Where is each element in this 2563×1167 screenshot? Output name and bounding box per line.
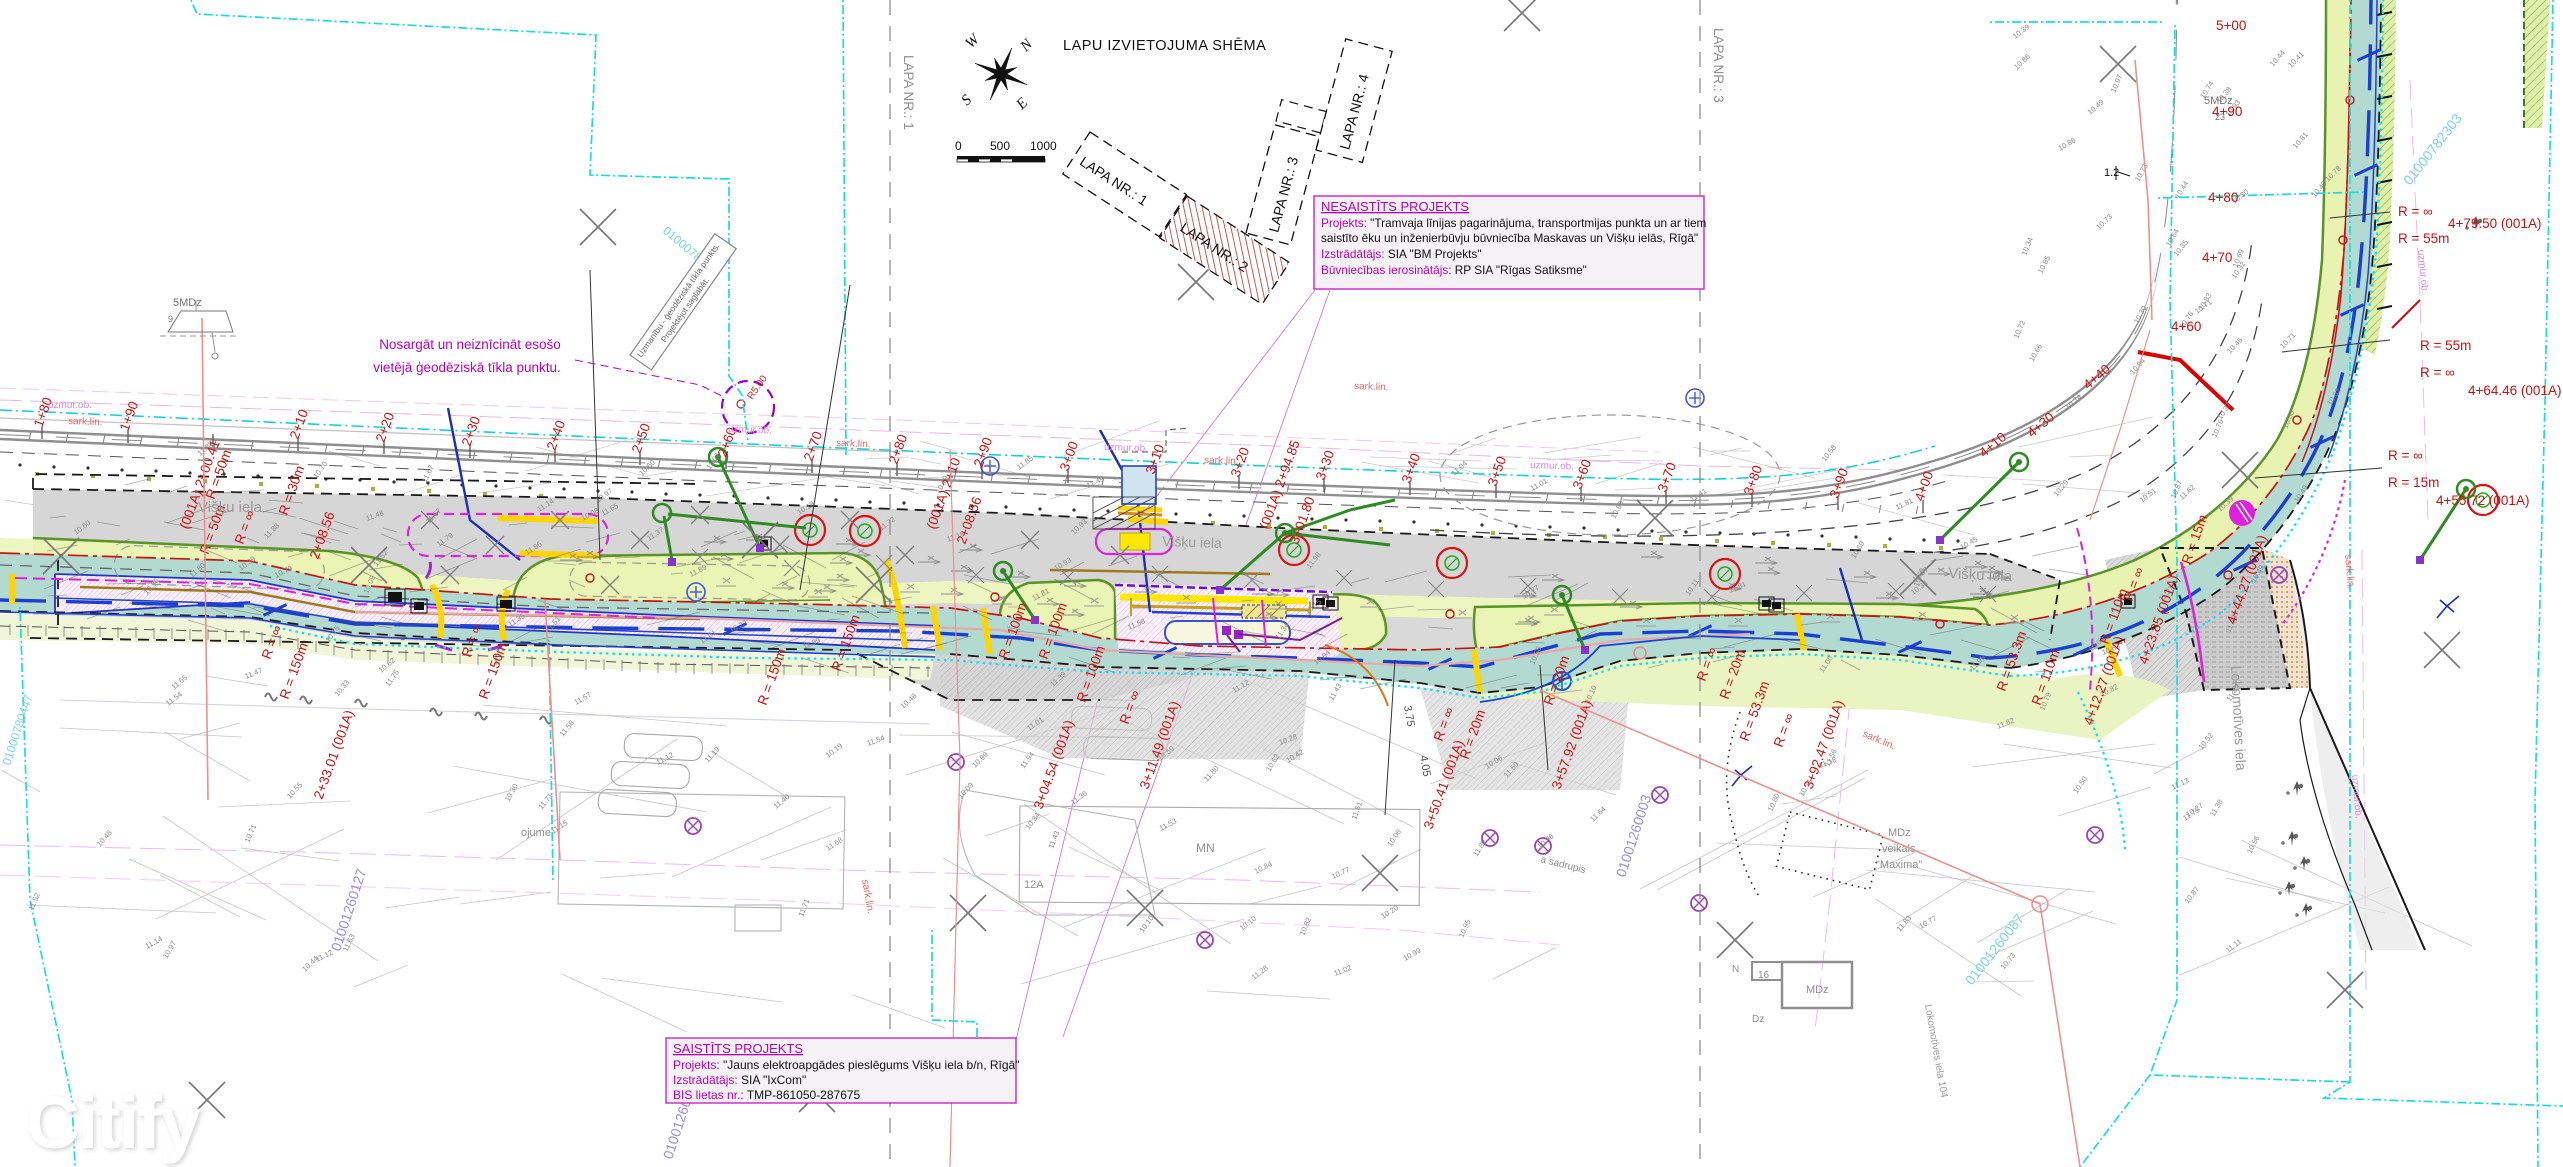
svg-text:NESAISTĪTS PROJEKTS: NESAISTĪTS PROJEKTS: [1321, 199, 1469, 214]
svg-text:Projekts: "Jauns elektroapgāde: Projekts: "Jauns elektroapgādes pieslēgu…: [673, 1058, 1020, 1072]
svg-text:5+00: 5+00: [2216, 18, 2246, 33]
svg-text:4+70: 4+70: [2202, 250, 2232, 265]
svg-text:R = ∞: R = ∞: [2420, 365, 2455, 380]
svg-text:4+60: 4+60: [2171, 319, 2201, 334]
svg-text:Dz: Dz: [1752, 1014, 1764, 1025]
svg-text:SAISTĪTS PROJEKTS: SAISTĪTS PROJEKTS: [673, 1041, 803, 1056]
svg-text:Višķu iela: Višķu iela: [1162, 533, 1222, 551]
svg-text:sark.lin.: sark.lin.: [1354, 381, 1389, 393]
svg-text:uzmur.ob.: uzmur.ob.: [1530, 460, 1574, 473]
svg-text:5MDz: 5MDz: [2204, 95, 2233, 107]
svg-text:sark.lin.: sark.lin.: [68, 416, 103, 428]
svg-text:R = 15m: R = 15m: [2388, 475, 2439, 490]
svg-text:5MDz: 5MDz: [173, 297, 202, 309]
svg-text:Nosargāt un neiznīcināt esošo: Nosargāt un neiznīcināt esošo: [379, 337, 561, 352]
svg-text:4+55.72 (001A): 4+55.72 (001A): [2436, 493, 2529, 508]
svg-text:saistīto ēku un inženierbūvju: saistīto ēku un inženierbūvju būvniecība…: [1321, 231, 1698, 245]
svg-text:23: 23: [2215, 112, 2225, 122]
svg-text:MDz: MDz: [1888, 827, 1911, 839]
svg-text:MDz: MDz: [1806, 984, 1829, 996]
svg-text:N: N: [1732, 964, 1739, 975]
svg-text:"Maxima": "Maxima": [1876, 859, 1922, 871]
svg-text:ojume: ojume: [521, 827, 551, 839]
svg-text:4+64.46 (001A): 4+64.46 (001A): [2468, 383, 2561, 398]
svg-text:sark.lin.: sark.lin.: [836, 438, 871, 450]
svg-text:1000: 1000: [1030, 139, 1057, 153]
svg-text:R = ∞: R = ∞: [2388, 448, 2423, 463]
svg-text:uzmur.ob.: uzmur.ob.: [1104, 442, 1148, 455]
svg-text:LAPA NR.: 3: LAPA NR.: 3: [1711, 28, 1726, 103]
svg-text:4+80: 4+80: [2208, 190, 2238, 205]
svg-text:Izstrādātājs: SIA "IxCom": Izstrādātājs: SIA "IxCom": [673, 1073, 806, 1087]
svg-text:Višķu iela: Višķu iela: [198, 499, 263, 516]
svg-text:Projekts: "Tramvaja līnijas pa: Projekts: "Tramvaja līnijas pagarinājuma…: [1321, 216, 1707, 230]
svg-text:4+79.50 (001A): 4+79.50 (001A): [2448, 216, 2541, 231]
svg-text:Citify: Citify: [26, 1081, 201, 1164]
svg-text:1.2: 1.2: [2104, 167, 2119, 179]
svg-text:LAPA NR.: 1: LAPA NR.: 1: [901, 55, 916, 130]
svg-text:0: 0: [955, 139, 962, 153]
svg-text:R = 55m: R = 55m: [2398, 231, 2449, 246]
svg-text:MN: MN: [1196, 841, 1215, 855]
svg-text:Izstrādātājs: SIA "BM Projekts: Izstrādātājs: SIA "BM Projekts": [1321, 247, 1482, 261]
svg-text:BIS lietas nr.: TMP-861050-287: BIS lietas nr.: TMP-861050-287675: [673, 1088, 861, 1102]
svg-text:500: 500: [990, 139, 1010, 153]
svg-text:12A: 12A: [1024, 879, 1044, 891]
svg-text:uzmur.ob.: uzmur.ob.: [48, 400, 92, 411]
svg-text:R = 55m: R = 55m: [2420, 338, 2471, 353]
svg-text:Būvniecības ierosinātājs: RP S: Būvniecības ierosinātājs: RP SIA "Rīgas …: [1321, 263, 1587, 277]
svg-text:LAPU IZVIETOJUMA SHĒMA: LAPU IZVIETOJUMA SHĒMA: [1063, 38, 1266, 54]
svg-text:R = ∞: R = ∞: [2398, 204, 2433, 219]
svg-text:Višķu iela: Višķu iela: [1948, 565, 2013, 585]
svg-text:vietējā ģeodēziskā tīkla punkt: vietējā ģeodēziskā tīkla punktu.: [373, 360, 561, 375]
svg-text:9: 9: [168, 314, 173, 324]
svg-text:uzmur.ob.: uzmur.ob.: [728, 424, 772, 437]
svg-text:16: 16: [1758, 970, 1770, 981]
svg-text:sark.lin.: sark.lin.: [1204, 455, 1239, 467]
